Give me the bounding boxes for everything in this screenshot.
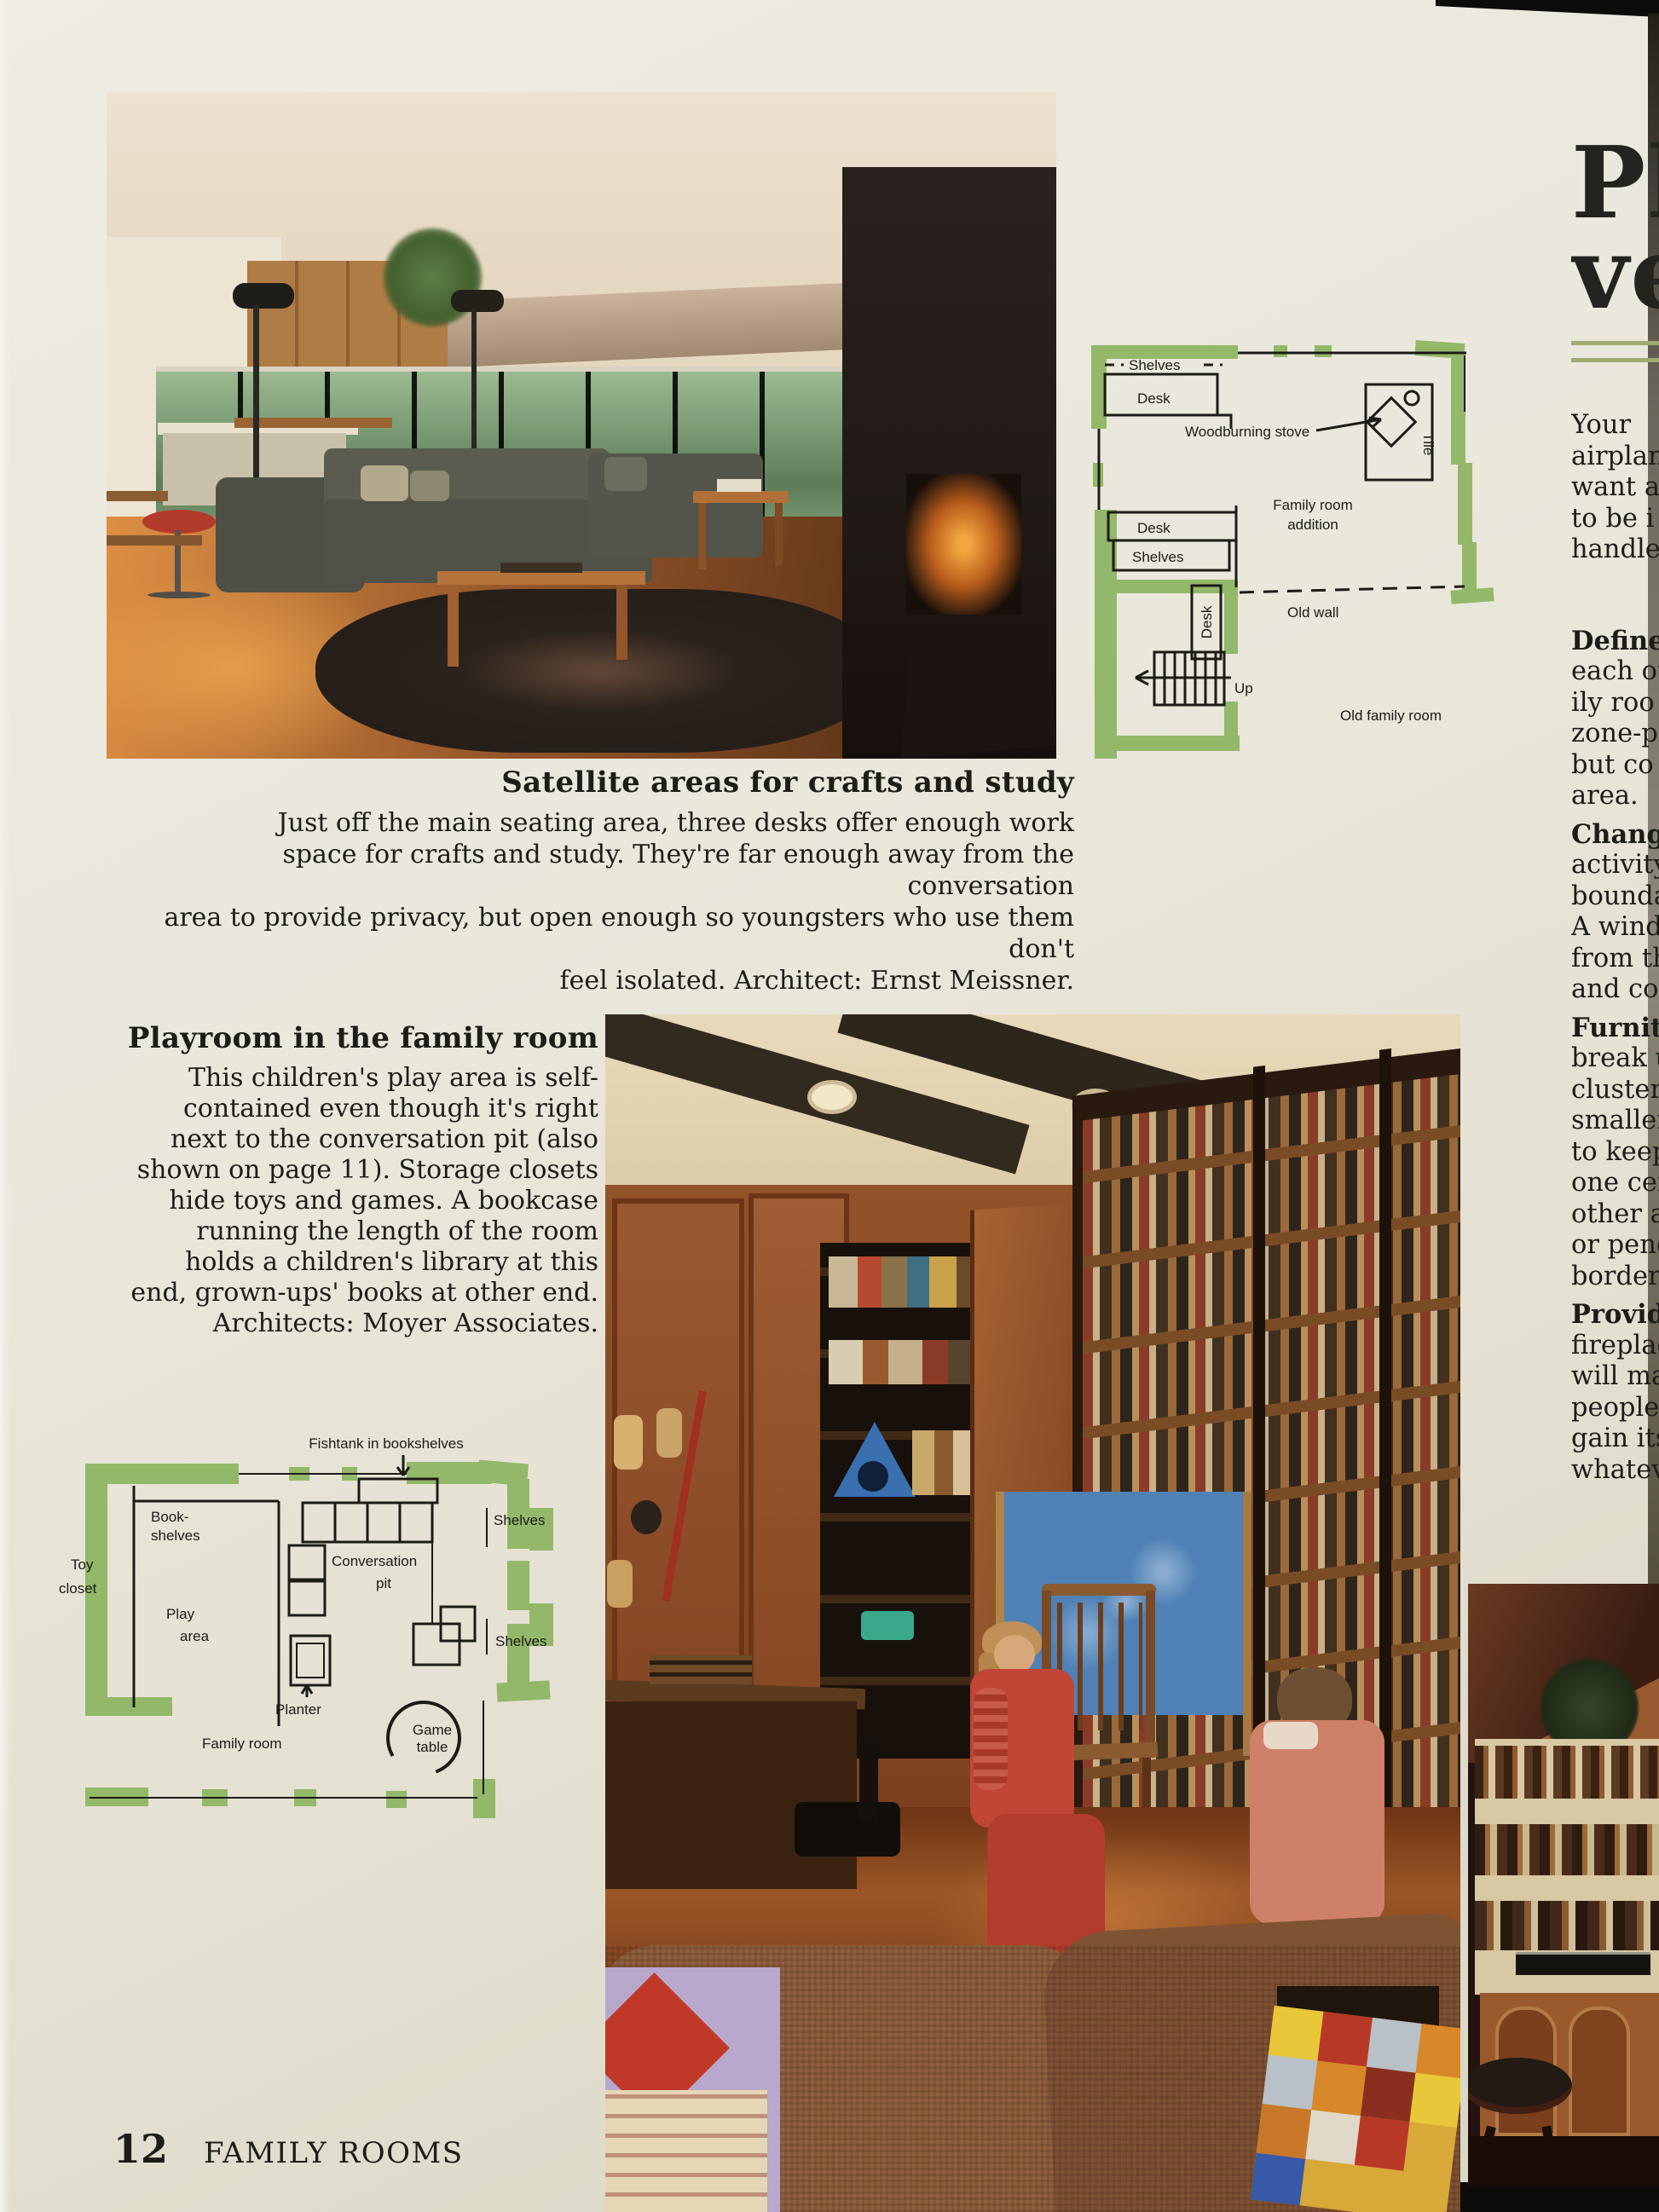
plan1-shelves-mid: Shelves bbox=[1132, 549, 1183, 565]
black-chair bbox=[795, 1802, 900, 1857]
hanging-toy3 bbox=[631, 1500, 662, 1534]
body-line: A wind bbox=[1571, 912, 1659, 944]
caption-line: space for crafts and study. They're far … bbox=[128, 839, 1074, 902]
plan1-desk-vertical: Desk bbox=[1199, 605, 1215, 638]
body-line: borders bbox=[1571, 1262, 1659, 1293]
plan1-old-family-room: Old family room bbox=[1340, 707, 1442, 724]
caption-line: This children's play area is self- bbox=[34, 1063, 598, 1094]
sofa-pillow bbox=[361, 465, 408, 501]
caption-satellite-title: Satellite areas for crafts and study bbox=[128, 765, 1074, 800]
desk-front bbox=[605, 1701, 857, 1889]
body-line: cluster bbox=[1571, 1075, 1659, 1106]
child-collar bbox=[1263, 1722, 1318, 1749]
body-line: to be i bbox=[1571, 504, 1659, 535]
sofa-pillow3 bbox=[604, 457, 647, 491]
body-line: Provide bbox=[1571, 1299, 1659, 1331]
bookshelf-divider bbox=[1253, 1066, 1265, 1834]
black-chair-back bbox=[859, 1741, 878, 1821]
caption-playroom-title: Playroom in the family room bbox=[34, 1021, 598, 1055]
body-line: to keep bbox=[1571, 1137, 1659, 1169]
column-heading-line2: ve bbox=[1571, 228, 1659, 319]
magazine-page: Shelves Desk Woodburning stove Tile Fami… bbox=[0, 0, 1659, 2212]
plan2-play-2: area bbox=[180, 1628, 210, 1644]
body-line: bounda bbox=[1571, 881, 1659, 913]
books-row3 bbox=[1475, 1901, 1659, 1950]
living-room-photo bbox=[107, 92, 1056, 759]
rocking-chair-slats bbox=[961, 569, 1046, 697]
closet-shelves bbox=[820, 1243, 991, 1759]
adjacent-page-photo bbox=[1468, 1584, 1659, 2186]
toy-phone bbox=[861, 1611, 914, 1640]
background-corner bbox=[1436, 0, 1659, 17]
coffee-table-items bbox=[500, 563, 582, 573]
bookshelf-divider2 bbox=[1379, 1048, 1391, 1834]
body-line: fireplac bbox=[1571, 1331, 1659, 1362]
cabinet-panel2 bbox=[1569, 2007, 1630, 2136]
caption-line: Architects: Moyer Associates. bbox=[34, 1308, 598, 1339]
caption-playroom: Playroom in the family room This childre… bbox=[34, 1021, 598, 1339]
caption-line: Just off the main seating area, three de… bbox=[128, 807, 1074, 839]
right-text-column: Pl ve Your airplan want a to be i handle… bbox=[1571, 138, 1659, 1486]
body-line: from th bbox=[1571, 944, 1659, 975]
plan2-pit-1: Conversation bbox=[332, 1553, 417, 1569]
plan2-pit-2: pit bbox=[376, 1575, 391, 1591]
caption-line: hide toys and games. A bookcase bbox=[34, 1186, 598, 1216]
coffee-table-top bbox=[437, 571, 645, 585]
plan2-family-room: Family room bbox=[202, 1736, 282, 1752]
body-line: want a bbox=[1571, 472, 1659, 504]
hanging-toy4 bbox=[607, 1560, 633, 1608]
side-table-paper bbox=[717, 479, 761, 492]
background-bottom bbox=[1449, 2182, 1659, 2212]
toy-boxes bbox=[829, 1256, 982, 1308]
body-line: area. bbox=[1571, 781, 1659, 812]
body-line: Furnitu bbox=[1571, 1013, 1659, 1044]
plan1-shelves-top: Shelves bbox=[1129, 357, 1180, 373]
plan2-shelves-top: Shelves bbox=[494, 1512, 545, 1528]
plan2-fishtank: Fishtank in bookshelves bbox=[309, 1435, 463, 1452]
floor-shadow bbox=[1468, 2136, 1659, 2186]
body-line: other a bbox=[1571, 1199, 1659, 1231]
coffee-table-leg bbox=[448, 585, 459, 667]
body-line: ily roo bbox=[1571, 688, 1659, 719]
plan2-shelves-bottom: Shelves bbox=[495, 1633, 546, 1649]
plan1-family-room-1: Family room bbox=[1273, 497, 1353, 513]
column-body: Your airplan want a to be i handle Defin… bbox=[1571, 410, 1659, 1486]
leather-stool bbox=[1468, 2058, 1572, 2114]
stair-shelf bbox=[107, 491, 168, 501]
stair-shelf2 bbox=[107, 535, 202, 546]
body-line: Your bbox=[1571, 410, 1659, 442]
caption-line: feel isolated. Architect: Ernst Meissner… bbox=[128, 965, 1074, 996]
chair-post2 bbox=[1146, 1591, 1155, 1758]
side-table-leg2 bbox=[775, 503, 783, 566]
body-line: break u bbox=[1571, 1043, 1659, 1075]
caption-line: shown on page 11). Storage closets bbox=[34, 1155, 598, 1186]
plan1-stove-label: Woodburning stove bbox=[1185, 424, 1309, 440]
playroom-photo bbox=[605, 1014, 1460, 2212]
caption-line: end, grown-ups' books at other end. bbox=[34, 1278, 598, 1308]
rug bbox=[315, 589, 882, 753]
plan1-tile-label: Tile bbox=[1420, 433, 1436, 456]
quilt-left-plaid bbox=[605, 2090, 767, 2212]
stereo bbox=[1516, 1952, 1650, 1975]
body-line: gain its bbox=[1571, 1424, 1659, 1455]
hanging-toy bbox=[614, 1415, 643, 1470]
caption-line: contained even though it's right bbox=[34, 1094, 598, 1124]
plan1-desk-mid: Desk bbox=[1137, 520, 1171, 536]
plan2-bookshelves-2: shelves bbox=[151, 1528, 200, 1544]
caption-line: running the length of the room bbox=[34, 1216, 598, 1247]
books-row bbox=[1475, 1746, 1659, 1799]
desk-books bbox=[650, 1655, 752, 1684]
caption-satellite: Satellite areas for crafts and study Jus… bbox=[128, 765, 1074, 996]
plan2-toy-1: Toy bbox=[71, 1556, 94, 1573]
page-number: 12 bbox=[113, 2126, 168, 2172]
page-footer: 12FAMILY ROOMS bbox=[113, 2126, 464, 2172]
body-line: or pend bbox=[1571, 1230, 1659, 1262]
body-line: whateve bbox=[1571, 1455, 1659, 1487]
sofa-pillow2 bbox=[410, 471, 449, 501]
plan2-planter: Planter bbox=[275, 1701, 321, 1718]
body-line: one cer bbox=[1571, 1168, 1659, 1199]
body-line: each ot bbox=[1571, 656, 1659, 688]
double-rule bbox=[1571, 341, 1659, 362]
body-line: airplan bbox=[1571, 442, 1659, 473]
body-line: and co bbox=[1571, 974, 1659, 1006]
body-line: Changi bbox=[1571, 819, 1659, 851]
plan2-game: Game bbox=[413, 1722, 452, 1738]
coffee-table-leg2 bbox=[616, 585, 627, 660]
body-line: smaller bbox=[1571, 1106, 1659, 1137]
stool-base bbox=[147, 592, 211, 598]
body-line: people s bbox=[1571, 1393, 1659, 1424]
floor-plan-playroom: Fishtank in bookshelves Book- shelves To… bbox=[47, 1426, 635, 1891]
chair-backrail bbox=[1042, 1584, 1156, 1596]
plan1-old-wall: Old wall bbox=[1287, 604, 1338, 621]
body-line: Define bbox=[1571, 626, 1659, 657]
quilt-right bbox=[1251, 2006, 1460, 2212]
section-title: FAMILY ROOMS bbox=[204, 2136, 464, 2170]
child-body bbox=[1250, 1720, 1384, 1925]
body-line: zone-pl bbox=[1571, 719, 1659, 750]
plan1-family-room-2: addition bbox=[1287, 517, 1338, 533]
floor-lamp2-head bbox=[451, 290, 504, 312]
body-line: activity bbox=[1571, 850, 1659, 881]
books-row2 bbox=[1475, 1824, 1659, 1875]
plan2-play-1: Play bbox=[166, 1606, 195, 1622]
toy-boxes2 bbox=[829, 1340, 982, 1384]
body-line: but co bbox=[1571, 750, 1659, 782]
caption-line: next to the conversation pit (also bbox=[34, 1124, 598, 1155]
side-table-top bbox=[693, 491, 789, 503]
page-left-edge bbox=[0, 0, 10, 2212]
caption-line: area to provide privacy, but open enough… bbox=[128, 902, 1074, 965]
body-line: handle bbox=[1571, 534, 1659, 566]
body-line: will ma bbox=[1571, 1361, 1659, 1393]
floor-lamp-head bbox=[233, 283, 294, 309]
toy-triangle-hole bbox=[858, 1461, 888, 1492]
easel-leg2 bbox=[1243, 1492, 1251, 1756]
floor-plan-addition: Shelves Desk Woodburning stove Tile Fami… bbox=[1084, 335, 1511, 774]
caption-line: holds a children's library at this bbox=[34, 1247, 598, 1278]
girl-sleeve bbox=[974, 1688, 1008, 1790]
recessed-light bbox=[812, 1084, 853, 1110]
plan1-desk-top: Desk bbox=[1137, 390, 1171, 407]
plan2-table: table bbox=[417, 1739, 448, 1755]
hanging-toy2 bbox=[656, 1408, 682, 1458]
plan1-up: Up bbox=[1234, 680, 1253, 696]
plan2-toy-2: closet bbox=[59, 1580, 97, 1597]
plan2-bookshelves-1: Book- bbox=[151, 1509, 188, 1525]
side-table-leg bbox=[698, 503, 706, 569]
